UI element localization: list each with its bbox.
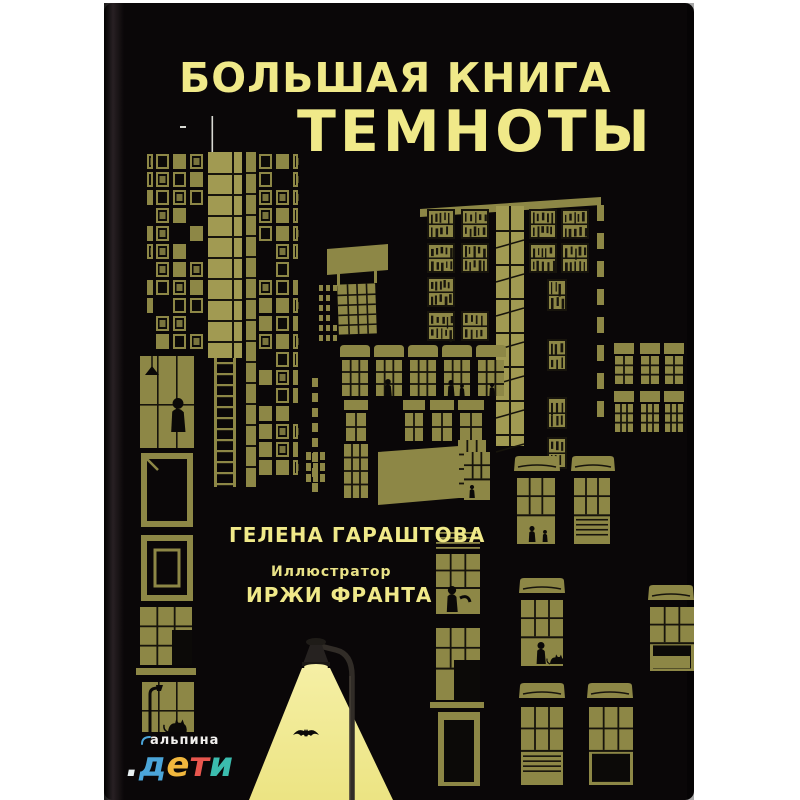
publisher-logo: альпина .дети xyxy=(126,733,246,782)
logo-letter: е xyxy=(166,748,189,782)
book-edge-shadow xyxy=(687,3,694,800)
book-cover-photo: БОЛЬШАЯ КНИГА ТЕМНОТЫ ГЕЛЕНА ГАРАШТОВА И… xyxy=(0,0,800,800)
logo-letter: т xyxy=(189,748,209,782)
title-line-1: БОЛЬШАЯ КНИГА xyxy=(179,54,612,102)
publisher-sub-brand: .дети xyxy=(126,748,246,782)
illustrator-label: Иллюстратор xyxy=(271,564,391,580)
illustrator-name: ИРЖИ ФРАНТА xyxy=(246,583,432,607)
book-spine xyxy=(104,3,124,800)
logo-letter: и xyxy=(209,748,233,782)
antenna xyxy=(180,126,186,128)
logo-letter: д xyxy=(139,748,166,782)
logo-swoosh-icon xyxy=(140,735,152,745)
antenna xyxy=(212,116,214,152)
logo-letter: . xyxy=(126,748,139,782)
author-name: ГЕЛЕНА ГАРАШТОВА xyxy=(229,523,485,547)
title-line-2: ТЕМНОТЫ xyxy=(297,99,654,165)
